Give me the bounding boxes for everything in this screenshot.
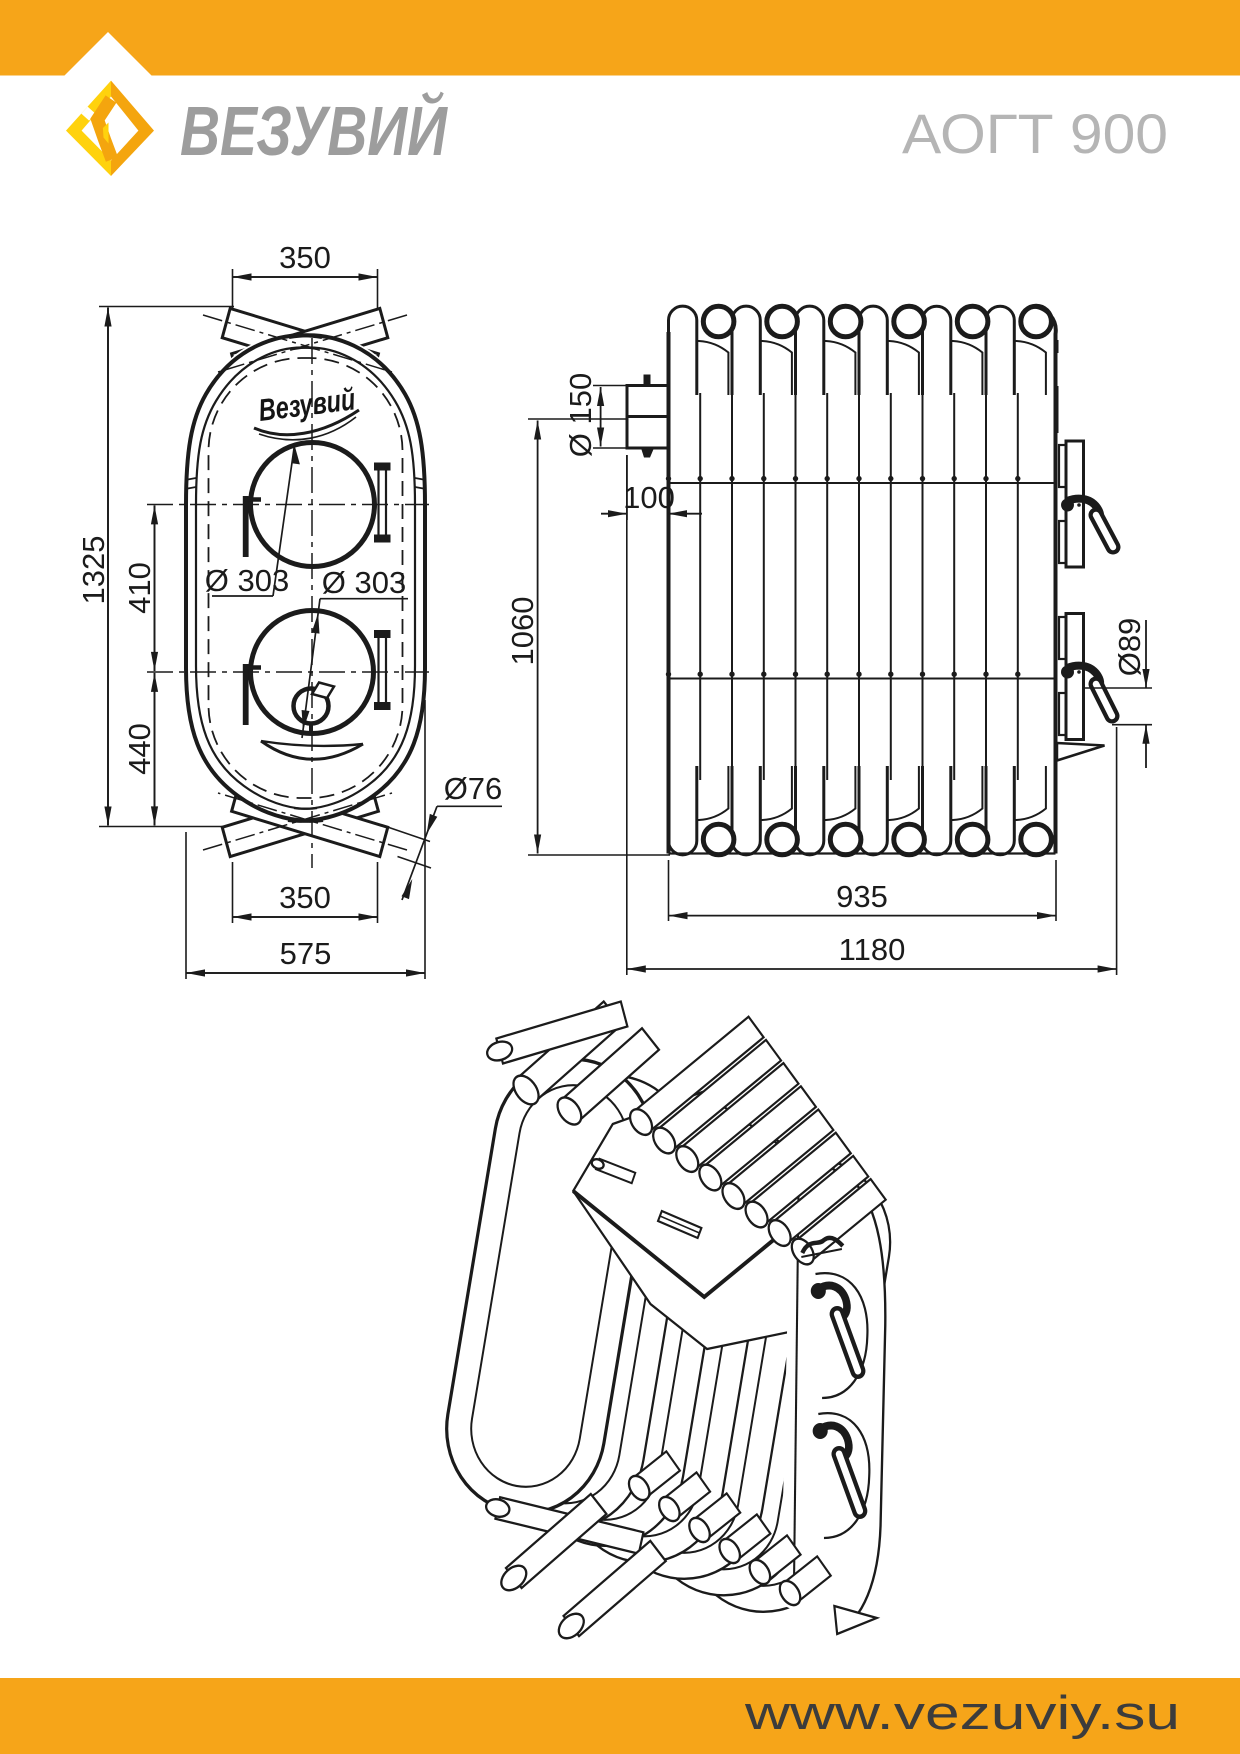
svg-text:Ø 150: Ø 150 [563,373,598,457]
svg-text:Ø76: Ø76 [444,771,503,806]
svg-text:АОГТ 900: АОГТ 900 [902,102,1168,165]
svg-text:440: 440 [122,723,157,775]
svg-text:Ø 303: Ø 303 [205,563,289,598]
svg-text:1060: 1060 [505,597,540,666]
svg-text:Ø89: Ø89 [1112,618,1147,677]
svg-text:100: 100 [623,480,675,515]
svg-text:410: 410 [122,562,157,614]
svg-text:575: 575 [280,936,332,971]
svg-text:www.vezuviy.su: www.vezuviy.su [744,1686,1180,1739]
svg-text:1180: 1180 [839,932,906,967]
svg-text:350: 350 [279,240,331,275]
svg-text:Ø 303: Ø 303 [322,565,406,600]
svg-text:935: 935 [836,879,888,914]
svg-text:350: 350 [279,880,331,915]
svg-text:ВЕЗУВИЙ: ВЕЗУВИЙ [180,90,448,170]
svg-text:1325: 1325 [76,536,111,605]
